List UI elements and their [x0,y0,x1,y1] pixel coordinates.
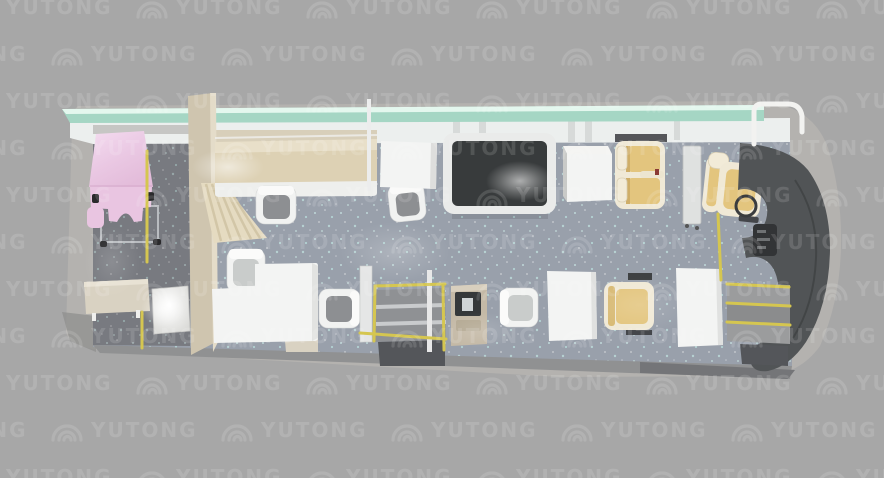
seatbelt-buckle [655,169,659,175]
storage-cabinet [563,146,612,202]
passenger-seat-pair [615,134,667,209]
driver-partition-board [683,146,701,230]
handrail-post [427,270,432,352]
yutong-bus-interior-render: YUTONGYUTONGYUTONGYUTONGYUTONGYUTONGYUTO… [0,0,884,478]
curtain-rail-pole [367,99,371,191]
exam-table [443,133,556,219]
consult-chair [256,186,296,224]
middle-door-steps [374,288,446,366]
bus-floorplan [0,0,884,478]
exam-stool [87,207,104,228]
patient-chair [319,289,360,328]
side-table [380,141,437,189]
